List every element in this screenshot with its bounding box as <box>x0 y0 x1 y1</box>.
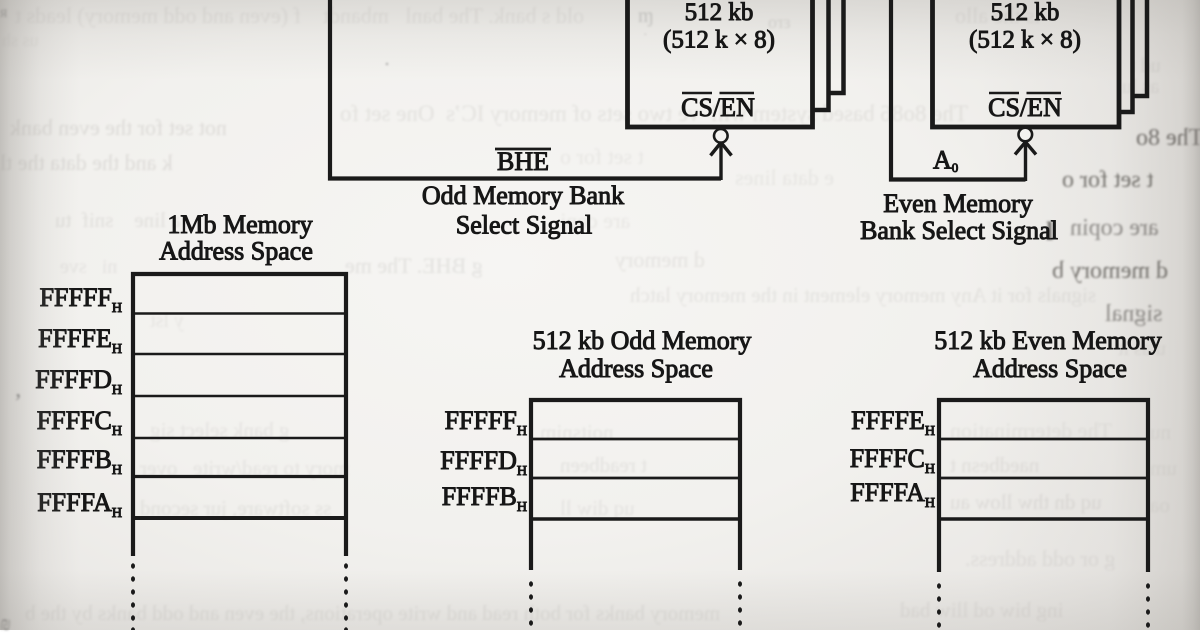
svg-text:FFFFBH: FFFFBH <box>442 482 527 515</box>
svg-text:(512 k × 8): (512 k × 8) <box>663 27 775 54</box>
svg-text:Even Memory: Even Memory <box>883 189 1032 218</box>
svg-text:512 kb: 512 kb <box>991 0 1060 26</box>
svg-text:FFFFFH: FFFFFH <box>445 406 527 439</box>
svg-text:512 kb Odd Memory: 512 kb Odd Memory <box>533 326 752 355</box>
svg-text:1Mb Memory: 1Mb Memory <box>167 210 312 239</box>
svg-text:Select Signal: Select Signal <box>456 211 592 240</box>
svg-text:FFFFCH: FFFFCH <box>850 444 935 477</box>
svg-text:FFFFEH: FFFFEH <box>851 406 935 439</box>
svg-text:FFFFDH: FFFFDH <box>440 446 527 479</box>
svg-text:Address Space: Address Space <box>559 354 713 383</box>
svg-text:A0: A0 <box>933 146 958 176</box>
svg-text:Address Space: Address Space <box>973 354 1127 383</box>
svg-text:CS/EN: CS/EN <box>988 93 1062 122</box>
svg-text:FFFFAH: FFFFAH <box>850 478 935 511</box>
svg-text:(512 k × 8): (512 k × 8) <box>969 27 1081 54</box>
svg-text:Address Space: Address Space <box>159 237 313 266</box>
svg-text:512 kb: 512 kb <box>685 0 754 26</box>
svg-text:CS/EN: CS/EN <box>681 93 755 122</box>
svg-text:Odd Memory Bank: Odd Memory Bank <box>422 181 624 210</box>
svg-text:Bank Select Signal: Bank Select Signal <box>860 216 1058 245</box>
svg-text:512 kb Even Memory: 512 kb Even Memory <box>934 326 1161 355</box>
svg-text:BHE: BHE <box>497 147 549 176</box>
